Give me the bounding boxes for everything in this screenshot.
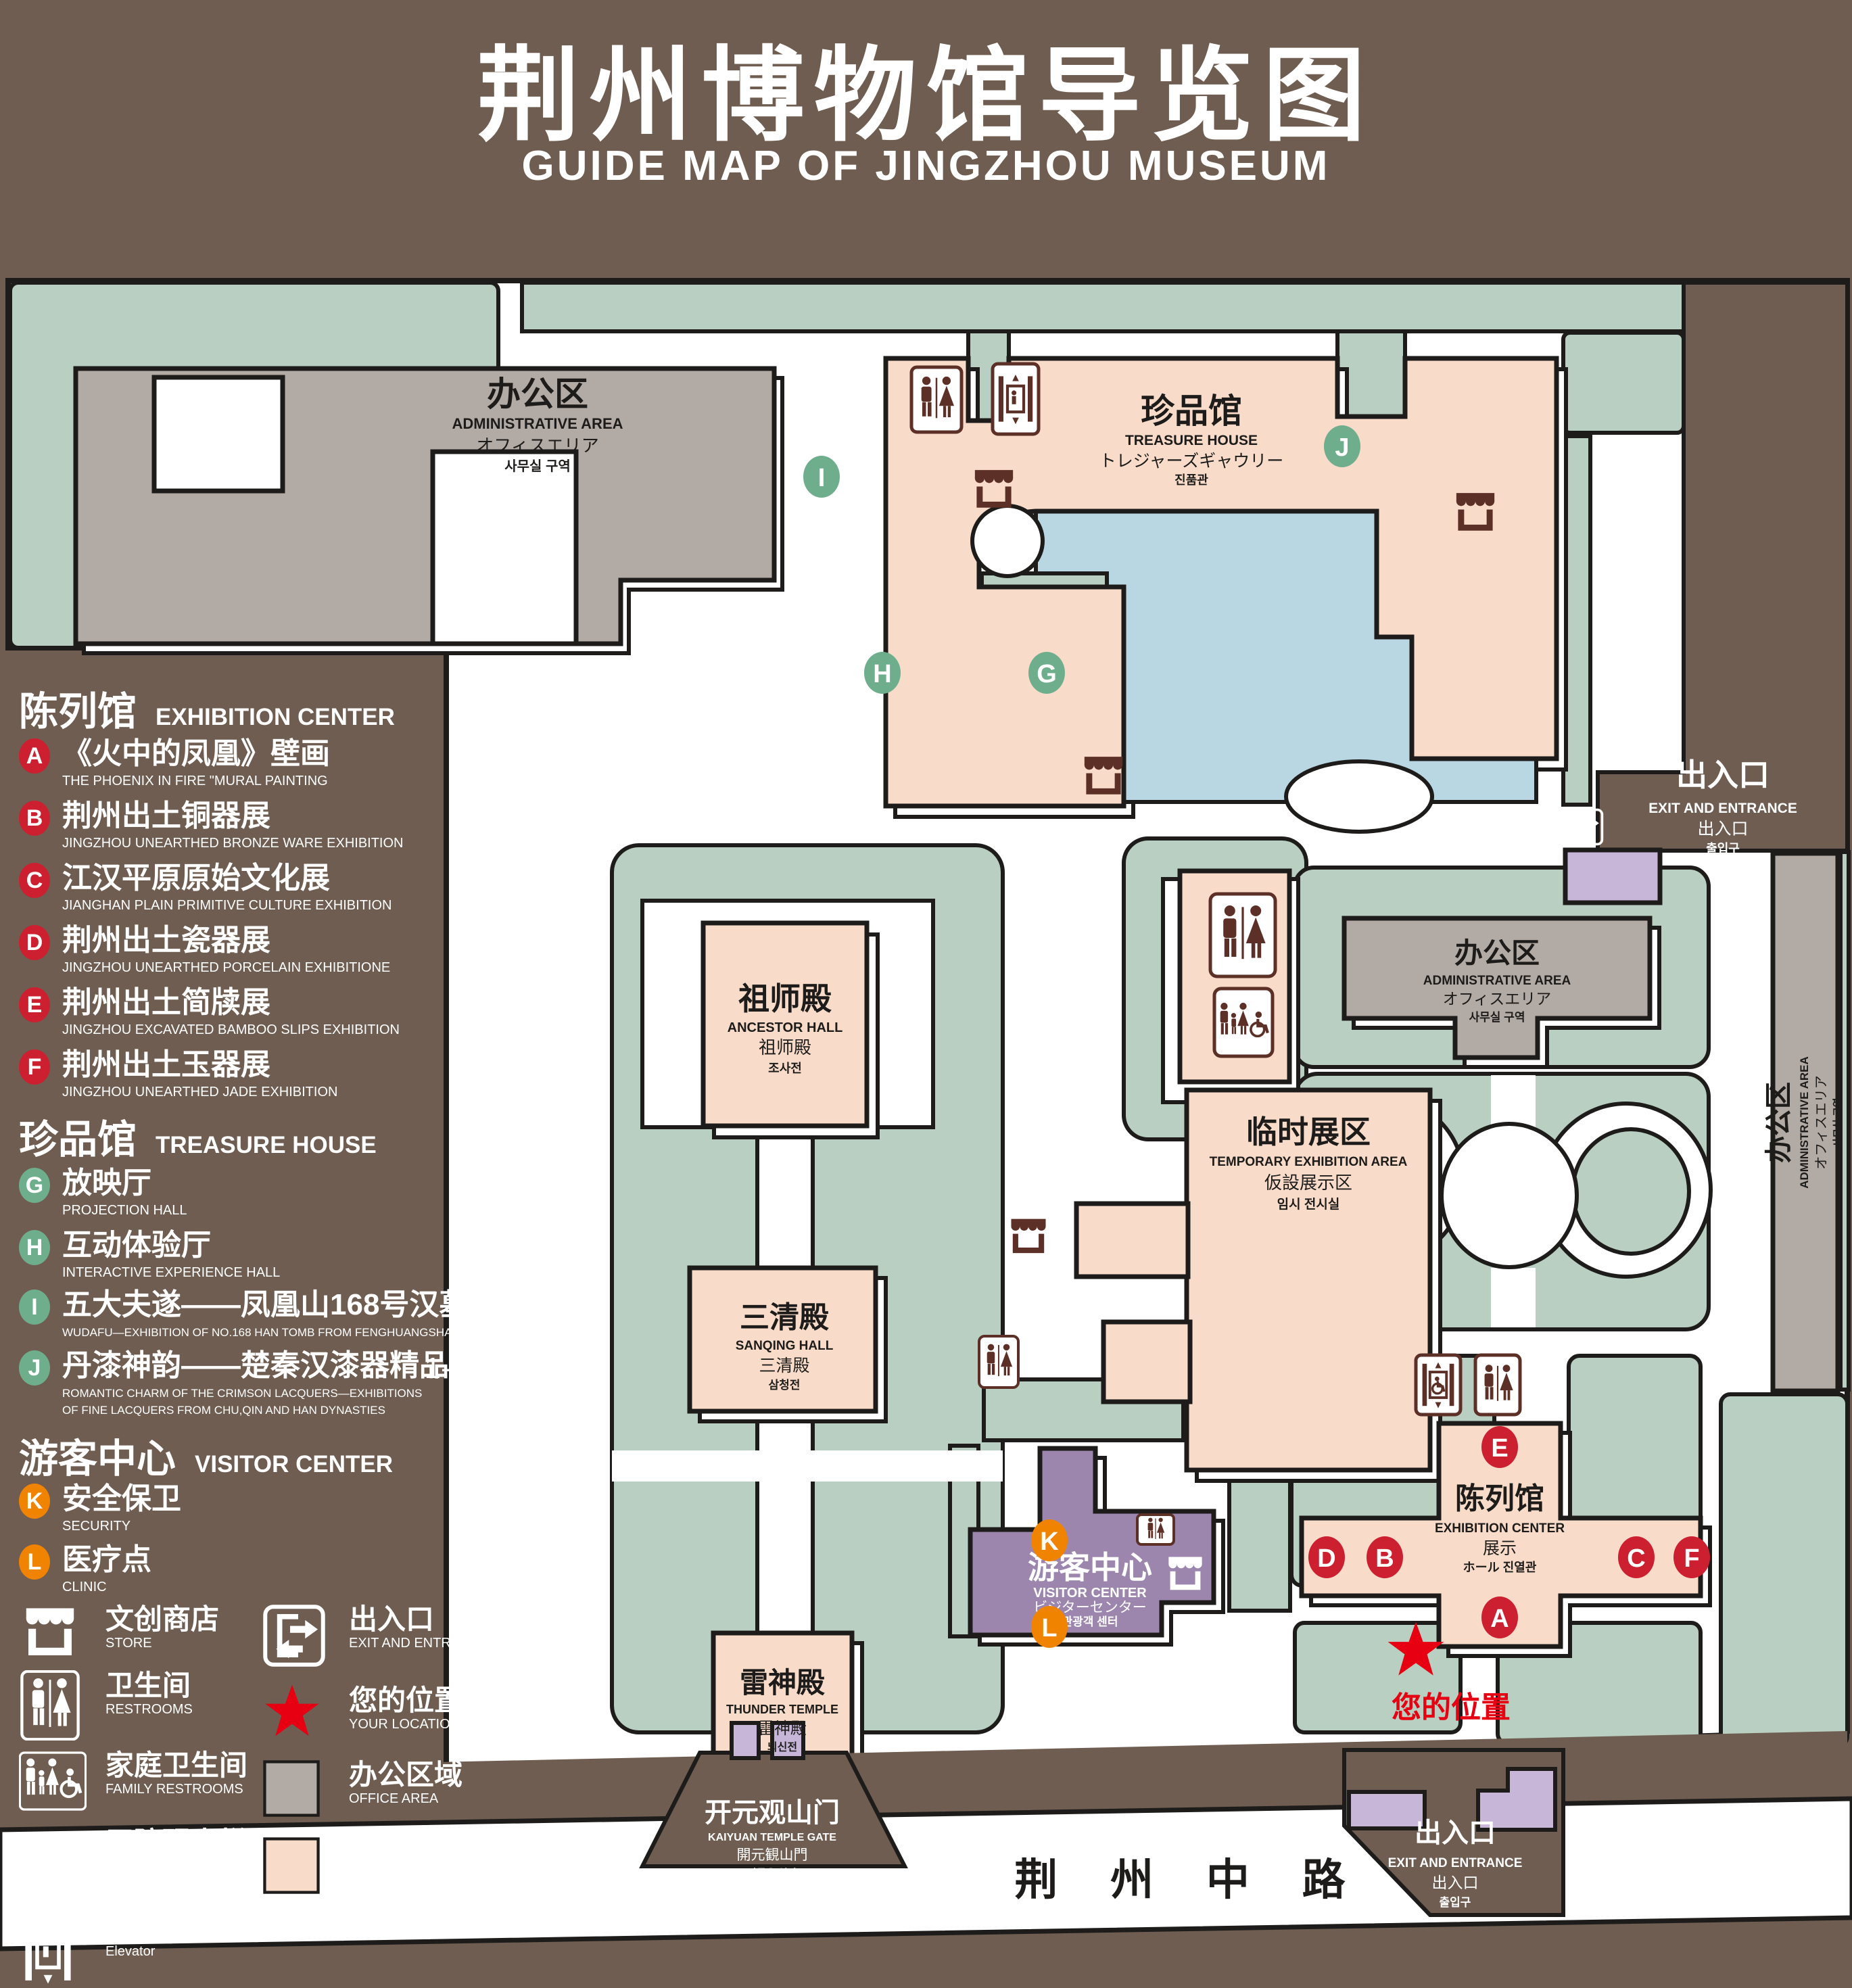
svg-text:SANQING HALL: SANQING HALL [736, 1339, 834, 1353]
legend-accessible-elevator: 无障碍电梯ACCESSIBLE ELEVATOR [19, 1827, 264, 1874]
svg-text:开元观山门: 开元观山门 [705, 1798, 840, 1828]
legend-family-restrooms: 家庭卫生间FAMILY RESTROOMS [19, 1750, 247, 1797]
restrooms-icon [1210, 894, 1275, 976]
svg-text:仮設展示区: 仮設展示区 [1264, 1173, 1352, 1193]
svg-text:三清殿: 三清殿 [740, 1301, 829, 1334]
floor-D: 2F [451, 926, 485, 960]
marker-C: C [1618, 1536, 1655, 1578]
marker-I: I [803, 456, 840, 498]
svg-text:開元観山門: 開元観山門 [737, 1847, 808, 1863]
marker-E: E [1481, 1426, 1518, 1468]
restrooms-icon [1137, 1515, 1174, 1544]
svg-text:ホール 진열관: ホール 진열관 [1463, 1561, 1537, 1574]
svg-text:EXHIBITION CENTER: EXHIBITION CENTER [1435, 1521, 1565, 1536]
accessible-elevator-icon [1416, 1355, 1461, 1415]
svg-text:トレジャーズギャウリー: トレジャーズギャウリー [1099, 452, 1284, 471]
floor-K: 1F [451, 1485, 485, 1519]
svg-text:出入口: 出入口 [1415, 1818, 1496, 1848]
badge-C: C [19, 863, 50, 898]
section-exhibition-center: 陈列馆EXHIBITION CENTER [19, 680, 395, 736]
badge-D: D [19, 925, 50, 960]
svg-text:L: L [1041, 1614, 1057, 1642]
svg-text:I: I [818, 464, 826, 492]
legend-item-A: A 《火中的凤凰》壁画 THE PHOENIX IN FIRE "MURAL P… [19, 737, 492, 790]
marker-L: L [1031, 1606, 1068, 1648]
svg-text:진품관: 진품관 [1174, 473, 1208, 487]
restrooms-icon [911, 367, 961, 432]
marker-D: D [1308, 1536, 1345, 1578]
floor-L: 1F [451, 1546, 485, 1580]
svg-text:三清殿: 三清殿 [759, 1356, 809, 1375]
svg-text:出入口: 出入口 [1432, 1874, 1479, 1891]
svg-text:D: D [1317, 1544, 1335, 1573]
svg-text:雷神殿: 雷神殿 [740, 1667, 825, 1699]
purple-building-exit-left [1349, 1792, 1425, 1828]
legend-item-B: B 荆州出土铜器展 JINGZHOU UNEARTHED BRONZE WARE… [19, 799, 492, 852]
svg-text:F: F [1684, 1544, 1699, 1573]
svg-text:H: H [873, 660, 891, 688]
svg-text:陈列馆: 陈列馆 [1455, 1482, 1544, 1515]
marker-A: A [1481, 1596, 1518, 1638]
svg-text:祖师殿: 祖师殿 [759, 1037, 811, 1058]
marker-F: F [1673, 1536, 1710, 1578]
svg-text:オフィスエリア: オフィスエリア [1814, 1075, 1829, 1170]
badge-B: B [19, 801, 50, 836]
svg-text:A: A [1490, 1605, 1509, 1633]
legend-item-J: J 丹漆神韵——楚秦汉漆器精品展 ROMANTIC CHARM OF THE C… [19, 1349, 492, 1419]
marker-G: G [1028, 652, 1065, 694]
svg-text:삼청전: 삼청전 [769, 1378, 801, 1392]
svg-text:ADMINISTRATIVE AREA: ADMINISTRATIVE AREA [1798, 1056, 1811, 1189]
badge-H: H [19, 1230, 50, 1265]
svg-text:办公区: 办公区 [1764, 1082, 1794, 1163]
legend-item-C: C 江汉平原原始文化展 JIANGHAN PLAIN PRIMITIVE CUL… [19, 861, 492, 914]
svg-text:KAIYUAN TEMPLE GATE: KAIYUAN TEMPLE GATE [708, 1832, 836, 1843]
svg-text:办公区: 办公区 [1454, 937, 1540, 969]
section-title-cn: 陈列馆 [19, 690, 137, 734]
marker-K: K [1031, 1519, 1068, 1561]
svg-text:TEMPORARY EXHIBITION AREA: TEMPORARY EXHIBITION AREA [1210, 1155, 1408, 1169]
legend-item-H: H 互动体验厅 INTERACTIVE EXPERIENCE HALL 1F [19, 1229, 492, 1281]
garden-pond [1442, 1124, 1577, 1267]
svg-text:E: E [1491, 1434, 1508, 1463]
svg-text:조사전: 조사전 [768, 1062, 802, 1075]
svg-text:祖师殿: 祖师殿 [738, 981, 832, 1016]
floor-I: 2F [451, 1291, 485, 1325]
svg-text:산문을 열다: 산문을 열다 [747, 1868, 797, 1879]
floor-B: 1F [451, 802, 485, 836]
legend-store: 文创商店STORE [19, 1604, 219, 1651]
svg-text:ADMINISTRATIVE AREA: ADMINISTRATIVE AREA [452, 415, 623, 432]
restrooms-icon [979, 1336, 1018, 1388]
svg-text:ANCESTOR HALL: ANCESTOR HALL [728, 1020, 843, 1035]
legend-elevator: 电梯Elevator [19, 1912, 162, 1960]
legend-restrooms: 卫生间RESTROOMS [19, 1670, 193, 1718]
svg-text:C: C [1627, 1544, 1645, 1573]
svg-text:VISITOR CENTER: VISITOR CENTER [1033, 1586, 1147, 1601]
road-label: 荆 州 中 路 [1014, 1855, 1365, 1904]
marker-J: J [1324, 425, 1360, 467]
svg-text:THUNDER TEMPLE: THUNDER TEMPLE [726, 1703, 838, 1716]
legend-item-L: L 医疗点 CLINIC 1F [19, 1543, 492, 1596]
svg-text:G: G [1037, 660, 1057, 688]
svg-text:出入口: 出入口 [1697, 820, 1748, 838]
svg-text:ADMINISTRATIVE AREA: ADMINISTRATIVE AREA [1423, 974, 1571, 988]
svg-text:출입구: 출입구 [1706, 841, 1740, 855]
gate-door-left [732, 1723, 759, 1758]
legend-item-G: G 放映厅 PROJECTION HALL 1F [19, 1166, 492, 1219]
floor-G: 1F [451, 1169, 485, 1203]
badge-I: I [19, 1289, 50, 1325]
elevator-icon [993, 364, 1039, 434]
svg-text:オフィスエリア: オフィスエリア [476, 435, 598, 456]
floor-E: 2F [451, 989, 485, 1022]
svg-text:사무실 구역: 사무실 구역 [1832, 1097, 1844, 1147]
family-restrooms-icon [1214, 989, 1273, 1056]
svg-text:TREASURE HOUSE: TREASURE HOUSE [1125, 433, 1258, 448]
badge-G: G [19, 1168, 50, 1203]
legend-item-K: K 安全保卫 SECURITY 1F [19, 1482, 492, 1535]
floor-H: 1F [451, 1231, 485, 1265]
svg-text:EXIT AND ENTRANCE: EXIT AND ENTRANCE [1388, 1856, 1523, 1870]
temp-wc-annex [1103, 1322, 1190, 1402]
badge-F: F [19, 1049, 50, 1085]
svg-text:临时展区: 临时展区 [1246, 1114, 1371, 1150]
badge-J: J [19, 1350, 50, 1386]
legend-your-location: 您的位置YOUR LOCATION [262, 1685, 462, 1732]
lawn-far-right [1721, 1394, 1847, 1746]
badge-E: E [19, 987, 50, 1022]
temp-store-annex [1076, 1204, 1188, 1277]
legend-office-area: 办公区域OFFICE AREA [262, 1759, 462, 1807]
badge-L: L [19, 1544, 50, 1580]
floor-F: 2F [451, 1051, 485, 1085]
marker-H: H [864, 652, 901, 694]
restrooms-icon [1475, 1355, 1520, 1415]
floor-C: 1F [451, 864, 485, 898]
legend-exit-entrance: 出入口EXIT AND ENTRANCE [262, 1604, 488, 1651]
pond-path-blob [1286, 761, 1432, 832]
lawn-top-strip [522, 283, 1690, 331]
badge-K: K [19, 1484, 50, 1519]
legend-display-area: 展示区域DISPLAY AREA [262, 1837, 462, 1884]
svg-text:B: B [1375, 1544, 1394, 1573]
svg-text:사무실 구역: 사무실 구역 [504, 458, 571, 474]
legend-item-F: F 荆州出土玉器展 JINGZHOU UNEARTHED JADE EXHIBI… [19, 1048, 492, 1101]
badge-A: A [19, 738, 50, 774]
svg-text:뇌신전: 뇌신전 [767, 1741, 797, 1753]
svg-text:出入口: 出入口 [1676, 757, 1770, 792]
svg-text:관광객 센터: 관광객 센터 [1062, 1615, 1118, 1628]
svg-text:J: J [1335, 433, 1349, 462]
purple-building-right [1565, 850, 1660, 903]
svg-text:K: K [1040, 1528, 1059, 1556]
svg-text:珍品馆: 珍品馆 [1141, 392, 1242, 430]
legend-item-I: I 五大夫遂——凤凰山168号汉墓展 WUDAFU—EXHIBITION OF … [19, 1288, 492, 1341]
svg-text:출입구: 출입구 [1440, 1896, 1471, 1909]
legend-item-E: E 荆州出土简牍展 JINGZHOU EXCAVATED BAMBOO SLIP… [19, 986, 492, 1039]
svg-text:办公区: 办公区 [487, 375, 588, 413]
floor-J: 1-2F [425, 1352, 485, 1386]
svg-text:オフィスエリア: オフィスエリア [1443, 990, 1552, 1008]
marker-B: B [1367, 1536, 1403, 1578]
svg-text:展示: 展示 [1483, 1539, 1517, 1558]
floor-A: 1F [451, 740, 485, 774]
svg-text:雷神殿: 雷神殿 [758, 1720, 807, 1738]
section-visitor-center: 游客中心VISITOR CENTER [19, 1427, 393, 1484]
pond-path-circle [972, 506, 1043, 576]
page-title: 荆州博物馆导览图 [0, 12, 1852, 161]
page-subtitle: GUIDE MAP OF JINGZHOU MUSEUM [0, 142, 1852, 190]
section-title-en: EXHIBITION CENTER [156, 704, 395, 730]
svg-text:EXIT AND ENTRANCE: EXIT AND ENTRANCE [1648, 801, 1797, 816]
svg-text:사무실 구역: 사무실 구역 [1469, 1011, 1525, 1024]
svg-text:您的位置: 您的位置 [1392, 1691, 1511, 1724]
section-treasure-house: 珍品馆TREASURE HOUSE [19, 1108, 377, 1164]
svg-text:임시 전시실: 임시 전시실 [1277, 1197, 1340, 1212]
lawn-top-right [1563, 333, 1684, 433]
legend-item-D: D 荆州出土瓷器展 JINGZHOU UNEARTHED PORCELAIN E… [19, 924, 492, 976]
